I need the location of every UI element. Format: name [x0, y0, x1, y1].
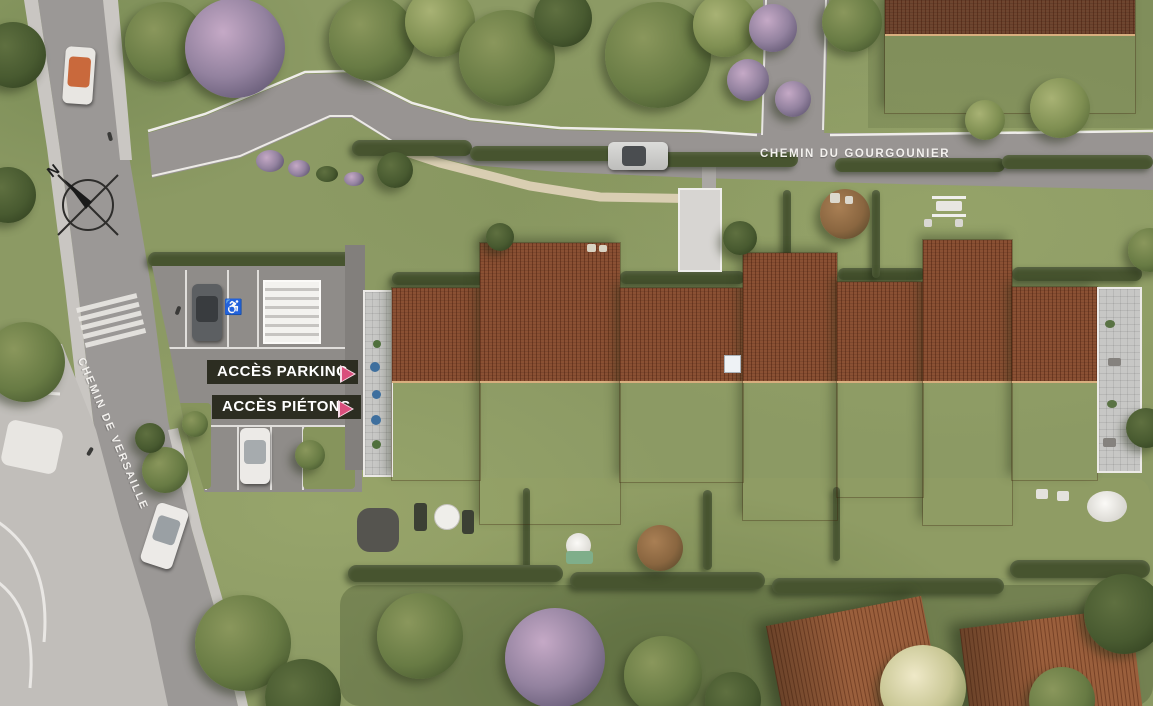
site-plan: N ♿	[0, 0, 1153, 706]
access-parking-tag: ACCÈS PARKING	[207, 360, 358, 384]
street-label-gourgounier: CHEMIN DU GOURGOUNIER	[760, 148, 920, 160]
street-label-versaille: CHEMIN DE VERSAILLE	[75, 356, 150, 512]
labels-layer: CHEMIN DU GOURGOUNIER CHEMIN DE VERSAILL…	[0, 0, 1153, 706]
